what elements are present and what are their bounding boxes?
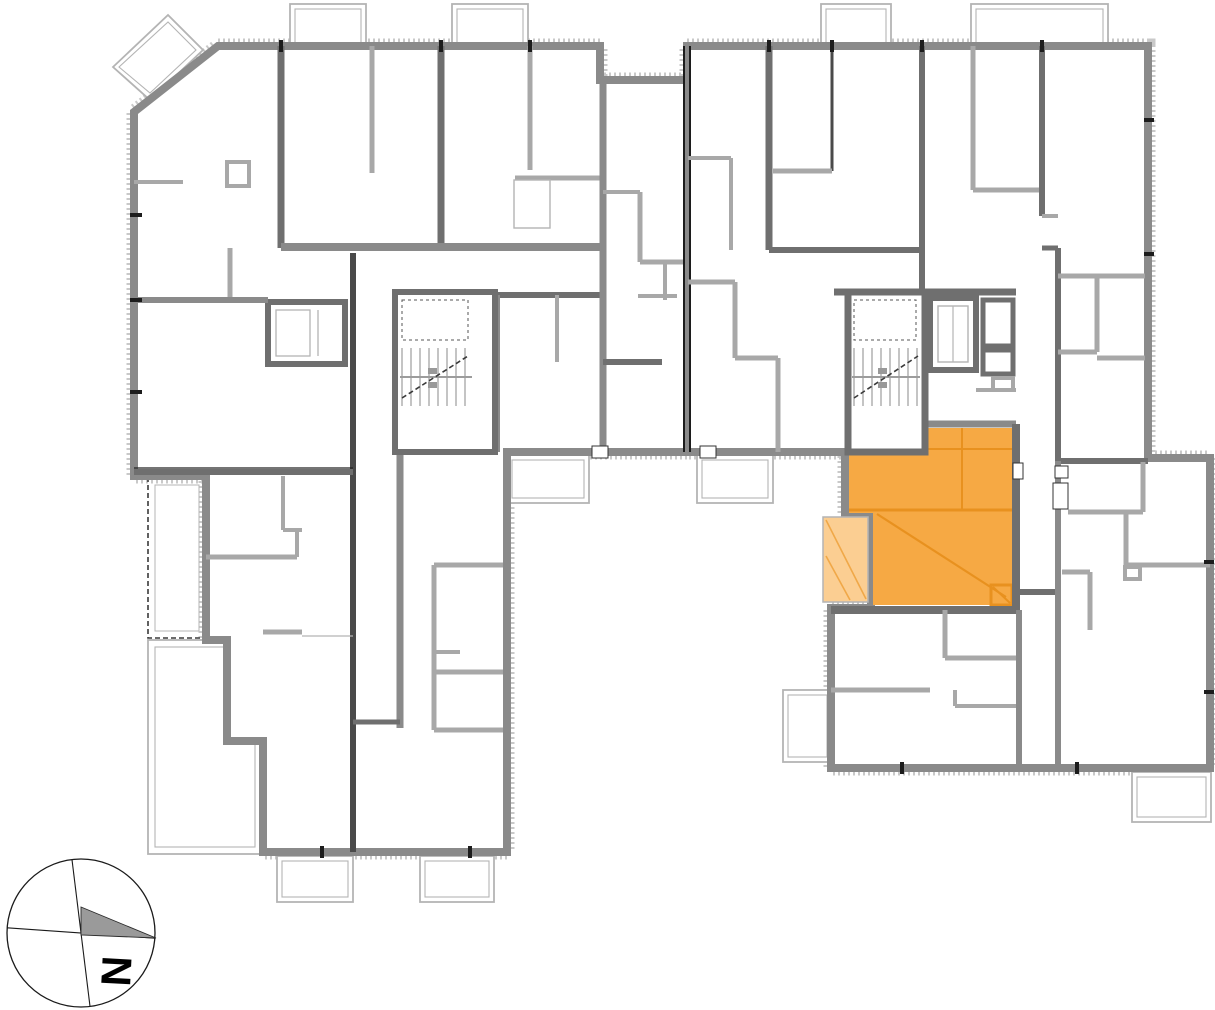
plan-segment xyxy=(697,455,773,503)
plan-segment xyxy=(783,690,832,762)
plan-segment xyxy=(428,368,437,374)
plan-segment xyxy=(1013,463,1023,479)
dashed-balcony xyxy=(148,478,206,638)
plan-segment xyxy=(767,40,771,52)
plan-segment xyxy=(821,4,891,46)
plan-segment xyxy=(395,292,495,452)
plan-segment xyxy=(878,382,887,388)
plan-segment xyxy=(830,40,834,52)
plan-segment xyxy=(878,368,887,374)
staircase-right xyxy=(848,292,925,452)
balcony-outline xyxy=(821,4,891,46)
plan-segment xyxy=(148,478,206,638)
plan-segment xyxy=(439,40,443,52)
balcony-outline xyxy=(783,690,832,762)
balcony-outline xyxy=(420,856,494,902)
plan-segment xyxy=(507,455,589,503)
balcony-outline xyxy=(971,4,1108,46)
plan-segment xyxy=(900,762,904,774)
plan-segment xyxy=(920,40,924,52)
shaft-rooms xyxy=(983,300,1013,390)
north-label: N xyxy=(92,955,141,988)
plan-segment xyxy=(993,378,1013,390)
staircase-left xyxy=(395,292,495,452)
plan-segment xyxy=(420,856,494,902)
plan-segment xyxy=(1055,466,1068,478)
balcony-outline xyxy=(507,455,589,503)
plan-segment xyxy=(277,856,353,902)
plan-segment xyxy=(1144,118,1154,122)
plan-segment xyxy=(528,40,532,52)
highlighted-unit-balcony[interactable] xyxy=(823,517,868,602)
plan-segment xyxy=(268,302,345,364)
plan-segment xyxy=(130,390,142,394)
elevator xyxy=(930,298,976,370)
plan-segment xyxy=(468,846,472,858)
balcony-outline xyxy=(697,455,773,503)
balcony-outline xyxy=(290,4,366,46)
plan-segment xyxy=(1144,252,1154,256)
plan-segment xyxy=(1040,40,1044,52)
plan-segment xyxy=(1204,560,1214,564)
balcony-outline xyxy=(452,4,528,46)
compass-rose: N xyxy=(7,859,156,1007)
plan-segment xyxy=(700,446,716,458)
floor-plan-page: N xyxy=(0,0,1215,1010)
balcony-outline xyxy=(1132,772,1211,822)
plan-segment xyxy=(983,300,1013,346)
balcony-outline xyxy=(277,856,353,902)
plan-segment xyxy=(320,846,324,858)
plan-segment xyxy=(1204,690,1214,694)
plan-segment xyxy=(983,350,1013,374)
plan-segment xyxy=(592,446,608,458)
plan-segment xyxy=(130,298,142,302)
plan-segment xyxy=(279,40,283,52)
plan-segment xyxy=(971,4,1108,46)
plan-segment xyxy=(1053,483,1068,509)
plan-segment xyxy=(452,4,528,46)
floor-plan-canvas: N xyxy=(0,0,1215,1010)
plan-segment xyxy=(130,213,142,217)
plan-segment xyxy=(1132,772,1211,822)
plan-segment xyxy=(428,382,437,388)
plan-segment xyxy=(290,4,366,46)
plan-segment xyxy=(155,485,199,631)
plan-segment xyxy=(1075,762,1079,774)
